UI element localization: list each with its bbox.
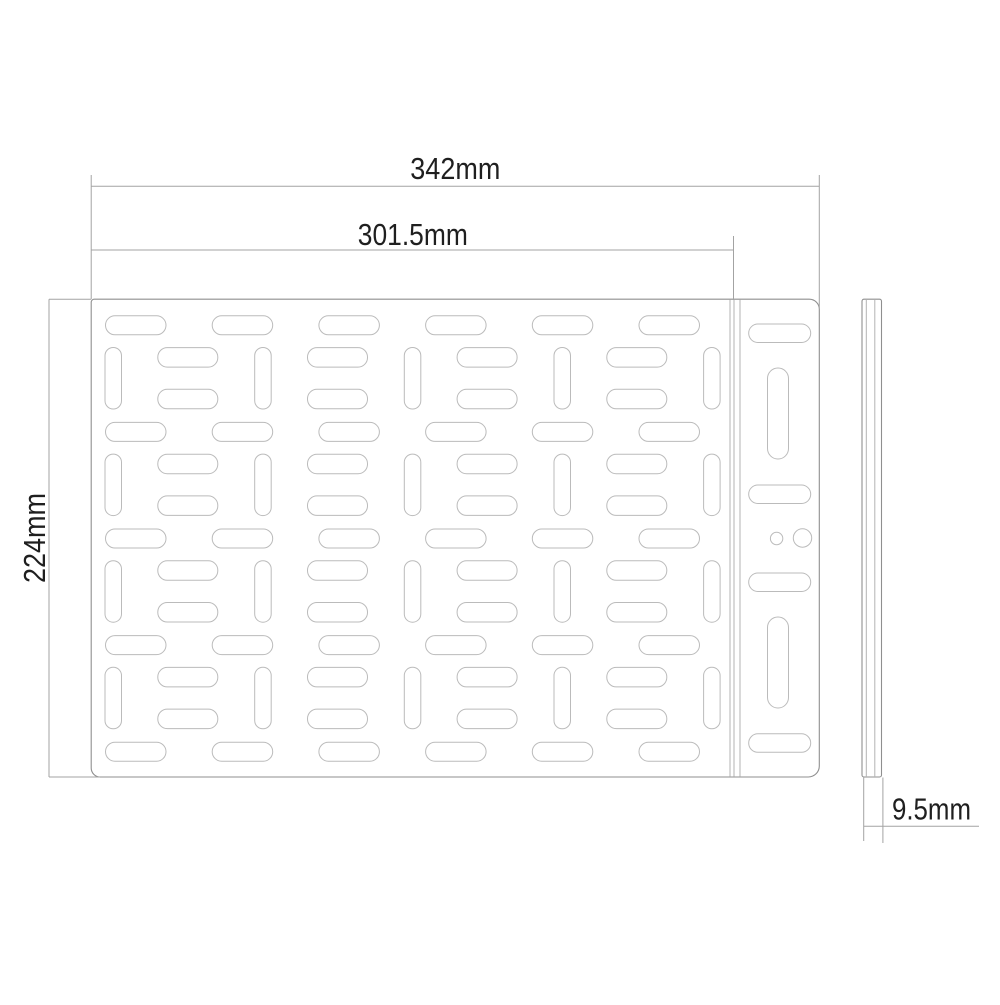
svg-text:224mm: 224mm	[18, 493, 52, 583]
svg-text:342mm: 342mm	[410, 152, 500, 186]
svg-text:9.5mm: 9.5mm	[892, 793, 971, 827]
svg-text:301.5mm: 301.5mm	[358, 218, 468, 252]
